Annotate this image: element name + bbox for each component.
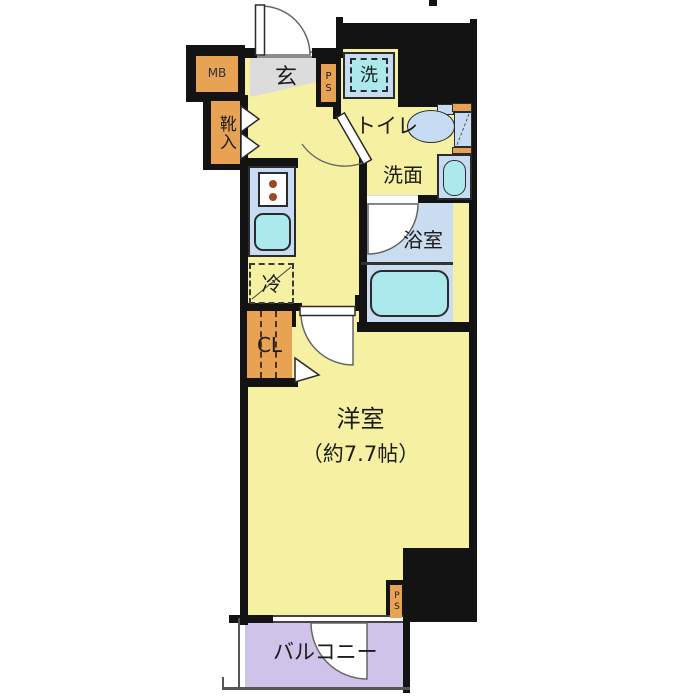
stove-burner-1 <box>269 180 277 188</box>
main-room-label: 洋室 <box>248 406 473 432</box>
kitchen-sink <box>254 213 291 251</box>
wall-balcony-right <box>403 622 410 693</box>
wall-top-tick <box>429 0 437 6</box>
genkan-label: 玄 <box>275 66 297 90</box>
washer-label: 洗 <box>343 52 395 99</box>
balcony-label: バルコニー <box>273 641 378 664</box>
shoe-storage-label: 靴入 <box>211 101 240 164</box>
balcony-outline-bottom <box>222 687 410 690</box>
wall-entry-left <box>240 48 258 58</box>
stove-burner-2 <box>269 193 277 201</box>
wall-mass-bottom-right <box>403 548 477 622</box>
closet-label: CL <box>247 311 292 378</box>
wall-mass-top <box>337 23 473 49</box>
vanity-cabinet-bottom <box>452 147 472 154</box>
wall-mass-block <box>398 49 473 107</box>
fridge-label: 冷 <box>249 263 294 304</box>
main-room-size-label: （約7.7帖） <box>248 443 473 466</box>
vanity-mirror-panel <box>454 112 472 147</box>
wall-bath-left <box>359 158 367 330</box>
tub-edge-line <box>361 262 453 265</box>
balcony-window-sill <box>273 615 403 623</box>
balcony-outline-stub <box>222 677 224 689</box>
toilet-label: トイレ <box>355 115 418 138</box>
wall-bottom-left <box>229 615 273 623</box>
balcony-outline-left <box>238 618 240 689</box>
stove-icon <box>258 172 288 207</box>
wall-closet-bottom <box>243 378 298 387</box>
wall-closet-top <box>243 303 298 311</box>
bathroom-label: 浴室 <box>403 229 443 251</box>
bathtub <box>370 270 449 317</box>
wall-bath-bottom <box>357 322 477 332</box>
meter-box-label: MB <box>196 56 238 92</box>
bathroom-doorway <box>367 196 418 203</box>
vanity-cabinet-top <box>452 103 472 112</box>
washroom-label: 洗面 <box>383 164 423 186</box>
entrance-sill-line <box>257 51 312 53</box>
pipe-space-bottom-label: PS <box>390 585 402 618</box>
washstand-basin <box>443 160 466 196</box>
wall-toilet-stub <box>333 107 341 119</box>
pipe-space-top-label: PS <box>321 64 336 102</box>
floor-plan: 玄 MB 靴入 PS 洗 トイレ 洗面 浴室 冷 CL 洋室 （約7.7帖） P… <box>0 0 700 700</box>
